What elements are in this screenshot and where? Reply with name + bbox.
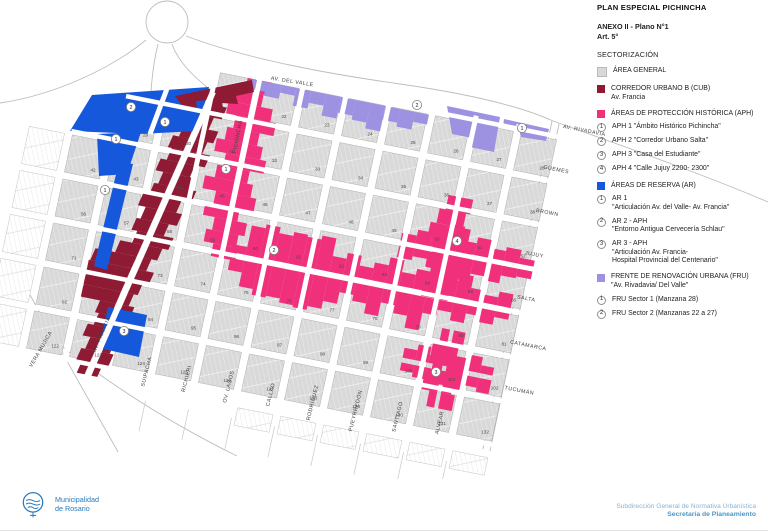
aph-swatch bbox=[597, 110, 605, 118]
city-block bbox=[456, 397, 499, 441]
legend-entry-number-badge: 2 bbox=[597, 218, 606, 227]
block-number: 47 bbox=[305, 211, 311, 216]
legend-panel: PLAN ESPECIAL PICHINCHA ANEXO II - Plano… bbox=[597, 3, 765, 319]
city-block bbox=[12, 170, 55, 214]
block-number: 44 bbox=[176, 185, 182, 190]
block-number: 72 bbox=[114, 264, 120, 269]
cub-swatch bbox=[597, 85, 605, 93]
block-number: 35 bbox=[401, 184, 407, 189]
fru-del-valle-strip-zone bbox=[264, 82, 282, 99]
block-number: 79 bbox=[415, 324, 421, 329]
city-block bbox=[363, 434, 402, 459]
area-general-label: ÁREA GENERAL bbox=[613, 67, 666, 76]
city-block bbox=[294, 319, 337, 363]
block-number: 24 bbox=[367, 131, 373, 136]
city-block bbox=[155, 337, 198, 381]
block-number: 64 bbox=[425, 280, 431, 285]
street-label: TUCUMÁN bbox=[504, 384, 535, 397]
block-number: 49 bbox=[391, 228, 397, 233]
legend-entry-text: AR 2 - APH"Entorno Antigua Cervecería Sc… bbox=[612, 218, 725, 235]
block-number: 75 bbox=[243, 290, 249, 295]
block-number: 37 bbox=[487, 201, 493, 206]
block-number: 34 bbox=[358, 175, 364, 180]
legend-entry-text: AR 3 - APH"Articulación Av. Francia-Hosp… bbox=[612, 240, 718, 266]
zone-marker-number: 2 bbox=[416, 103, 419, 109]
block-number: 71 bbox=[71, 256, 77, 261]
city-block bbox=[289, 134, 332, 178]
block-number: 58 bbox=[167, 229, 173, 234]
legend-entry-text: AR 1"Articulación Av. del Valle- Av. Fra… bbox=[612, 195, 729, 212]
legend-entry-number-badge: 3 bbox=[597, 151, 606, 160]
zone-marker-number: 1 bbox=[104, 188, 107, 194]
block-number: 56 bbox=[81, 212, 87, 217]
city-block bbox=[370, 380, 413, 424]
block-number: 46 bbox=[262, 202, 268, 207]
legend-entry: 3APH 3 "Casa del Estudiante" bbox=[597, 151, 765, 160]
cub-label: CORREDOR URBANO B (CUB) bbox=[611, 85, 710, 94]
block-number: 65 bbox=[468, 289, 474, 294]
street-stub bbox=[225, 418, 232, 449]
zone-marker-number: 3 bbox=[123, 329, 126, 335]
block-number: 33 bbox=[315, 167, 321, 172]
block-number: 59 bbox=[210, 237, 216, 242]
cub-sublabel: Av. Francia bbox=[611, 94, 710, 103]
block-number: 95 bbox=[191, 325, 197, 330]
block-number: 99 bbox=[363, 360, 369, 365]
ar-entry-list: 1AR 1"Articulación Av. del Valle- Av. Fr… bbox=[597, 195, 765, 265]
anexo-subtitle: ANEXO II - Plano N°1 bbox=[597, 22, 765, 31]
zone-marker-number: 1 bbox=[164, 120, 167, 126]
block-number: 122 bbox=[51, 344, 59, 349]
aph2-corredor-salta-zone bbox=[399, 272, 416, 289]
aph-entry-list: 1APH 1 "Ámbito Histórico Pichincha"2APH … bbox=[597, 123, 765, 174]
zone-marker-number: 1 bbox=[521, 126, 524, 132]
block-number: 30 bbox=[186, 141, 192, 146]
city-block bbox=[337, 327, 380, 371]
street-label: CATAMARCA bbox=[509, 340, 546, 353]
legend-entry: 3AR 3 - APH"Articulación Av. Francia-Hos… bbox=[597, 240, 765, 266]
ar-swatch bbox=[597, 182, 605, 190]
aph4-calle-jujuy-h-zone bbox=[504, 247, 522, 264]
city-block bbox=[449, 451, 488, 476]
legend-entry: 1APH 1 "Ámbito Histórico Pichincha" bbox=[597, 123, 765, 132]
block-number: 62 bbox=[339, 263, 345, 268]
aph1-pichincha-zone bbox=[212, 217, 226, 232]
fru-swatch bbox=[597, 274, 605, 282]
block-number: 25 bbox=[410, 140, 416, 145]
footer-subdireccion: Subdirección General de Normativa Urbaní… bbox=[616, 503, 756, 510]
block-number: 97 bbox=[277, 343, 283, 348]
block-number: 32 bbox=[272, 158, 278, 163]
legend-fru: FRENTE DE RENOVACIÓN URBANA (FRU) "Av. R… bbox=[597, 273, 765, 290]
block-number: 42 bbox=[90, 168, 96, 173]
legend-entry-text: APH 2 "Corredor Urbano Salta" bbox=[612, 137, 708, 146]
block-number: 102 bbox=[491, 386, 499, 391]
block-number: 51 bbox=[477, 245, 483, 250]
city-block bbox=[2, 214, 45, 258]
city-block bbox=[365, 195, 408, 239]
street-stub bbox=[182, 409, 189, 440]
block-number: 63 bbox=[382, 272, 388, 277]
city-block bbox=[332, 143, 375, 187]
city-block bbox=[45, 223, 88, 267]
block-number: 80 bbox=[458, 333, 464, 338]
footer-department: Subdirección General de Normativa Urbaní… bbox=[616, 503, 756, 518]
block-number: 76 bbox=[286, 299, 292, 304]
city-block bbox=[327, 371, 370, 415]
footer-org-line2: de Rosario bbox=[55, 505, 99, 514]
city-block bbox=[55, 179, 98, 223]
section-title: SECTORIZACIÓN bbox=[597, 50, 765, 59]
legend-entry-number-badge: 4 bbox=[597, 165, 606, 174]
legend-entry-number-badge: 3 bbox=[597, 240, 606, 249]
block-number: 124 bbox=[137, 361, 145, 366]
legend-entry-number-badge: 2 bbox=[597, 310, 606, 319]
zone-marker-number: 3 bbox=[435, 370, 438, 376]
legend-entry: 2FRU Sector 2 (Manzanas 22 a 27) bbox=[597, 310, 765, 319]
city-block bbox=[234, 408, 273, 433]
city-block bbox=[284, 363, 327, 407]
block-number: 73 bbox=[157, 273, 163, 278]
zone-marker-number: 4 bbox=[456, 239, 459, 245]
block-number: 100 bbox=[405, 368, 413, 373]
rosario-logo-icon bbox=[18, 490, 48, 520]
road-line bbox=[172, 44, 213, 92]
legend-entry-text: FRU Sector 2 (Manzanas 22 a 27) bbox=[612, 310, 717, 319]
block-number: 98 bbox=[320, 351, 326, 356]
plan-title: PLAN ESPECIAL PICHINCHA bbox=[597, 3, 765, 12]
city-block bbox=[279, 178, 322, 222]
legend-area-general: ÁREA GENERAL bbox=[597, 67, 765, 78]
block-number: 60 bbox=[253, 246, 259, 251]
legend-entry: 4APH 4 "Calle Jujuy 2200- 2300" bbox=[597, 165, 765, 174]
legend-entry-number-badge: 1 bbox=[597, 123, 606, 132]
legend-entry-number-badge: 1 bbox=[597, 296, 606, 305]
fru-label: FRENTE DE RENOVACIÓN URBANA (FRU) bbox=[611, 273, 749, 282]
zone-marker-number: 2 bbox=[130, 105, 133, 111]
legend-entry-text: APH 4 "Calle Jujuy 2200- 2300" bbox=[612, 165, 709, 174]
block-number: 92 bbox=[62, 300, 68, 305]
fru-sublabel: "Av. Rivadavia/ Del Valle" bbox=[611, 282, 749, 291]
block-number: 93 bbox=[105, 308, 111, 313]
legend-entry: 2AR 2 - APH"Entorno Antigua Cervecería S… bbox=[597, 218, 765, 235]
block-number: 38 bbox=[530, 210, 536, 215]
block-number: 78 bbox=[372, 316, 378, 321]
city-block bbox=[241, 354, 284, 398]
legend-entry-number-badge: 2 bbox=[597, 137, 606, 146]
block-number: 48 bbox=[348, 219, 354, 224]
block-number: 66 bbox=[511, 298, 517, 303]
block-number: 45 bbox=[219, 193, 225, 198]
block-number: 96 bbox=[234, 334, 240, 339]
block-number: 26 bbox=[453, 148, 459, 153]
city-block bbox=[36, 267, 79, 311]
aph-label: ÁREAS DE PROTECCIÓN HISTÓRICA (APH) bbox=[611, 110, 753, 119]
block-number: 61 bbox=[296, 255, 302, 260]
city-block bbox=[165, 293, 208, 337]
block-number: 132 bbox=[481, 430, 489, 435]
legend-entry-text: APH 1 "Ámbito Histórico Pichincha" bbox=[612, 123, 721, 132]
zone-marker-number: 1 bbox=[115, 137, 118, 143]
block-number: 36 bbox=[444, 192, 450, 197]
legend-entry-number-badge: 1 bbox=[597, 195, 606, 204]
street-stub bbox=[139, 401, 146, 432]
legend-entry: 2APH 2 "Corredor Urbano Salta" bbox=[597, 137, 765, 146]
block-number: 101 bbox=[448, 377, 456, 382]
legend-aph: ÁREAS DE PROTECCIÓN HISTÓRICA (APH) bbox=[597, 110, 765, 119]
block-number: 81 bbox=[501, 342, 507, 347]
block-number: 57 bbox=[124, 220, 130, 225]
fru-entry-list: 1FRU Sector 1 (Manzana 28)2FRU Sector 2 … bbox=[597, 296, 765, 319]
block-number: 74 bbox=[200, 281, 206, 286]
block-number: 23 bbox=[324, 123, 330, 128]
footer-secretaria: Secretaría de Planeamiento bbox=[616, 511, 756, 518]
footer: Municipalidad de Rosario Subdirección Ge… bbox=[0, 479, 768, 531]
block-number: 22 bbox=[281, 114, 287, 119]
city-block bbox=[208, 301, 251, 345]
block-number: 43 bbox=[133, 176, 139, 181]
footer-branding: Municipalidad de Rosario bbox=[18, 490, 99, 520]
legend-entry-text: FRU Sector 1 (Manzana 28) bbox=[612, 296, 698, 305]
block-number: 50 bbox=[434, 236, 440, 241]
zone-marker-number: 2 bbox=[273, 248, 276, 254]
area-general-swatch bbox=[597, 67, 607, 77]
article-subtitle: Art. 5° bbox=[597, 32, 765, 41]
city-block bbox=[375, 151, 418, 195]
legend-entry: 1FRU Sector 1 (Manzana 28) bbox=[597, 296, 765, 305]
ar-label: ÁREAS DE RESERVA (AR) bbox=[611, 182, 696, 191]
city-block bbox=[21, 126, 64, 170]
city-block bbox=[198, 345, 241, 389]
legend-ar: ÁREAS DE RESERVA (AR) bbox=[597, 182, 765, 191]
city-block bbox=[251, 310, 294, 354]
block-number: 94 bbox=[148, 317, 154, 322]
zone-marker-number: 1 bbox=[225, 167, 228, 173]
legend-entry-text: APH 3 "Casa del Estudiante" bbox=[612, 151, 700, 160]
block-number: 77 bbox=[329, 307, 335, 312]
city-block bbox=[322, 187, 365, 231]
block-number: 27 bbox=[496, 157, 502, 162]
city-block bbox=[406, 442, 445, 467]
city-block bbox=[0, 302, 27, 346]
block-number: 29 bbox=[143, 132, 149, 137]
legend-entry: 1AR 1"Articulación Av. del Valle- Av. Fr… bbox=[597, 195, 765, 212]
road-loop bbox=[146, 1, 188, 43]
legend-cub: CORREDOR URBANO B (CUB) Av. Francia bbox=[597, 85, 765, 102]
